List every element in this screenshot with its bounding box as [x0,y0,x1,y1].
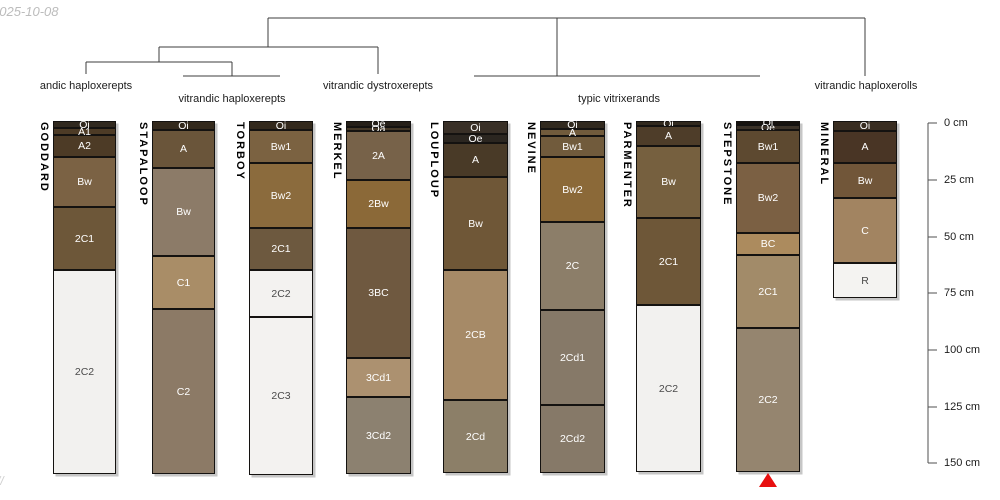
soil-profile-column: OiABw1Bw22C2Cd12Cd2 [540,121,605,473]
soil-horizon: Bw1 [540,136,605,157]
horizon-label: 3Cd2 [347,431,410,441]
soil-horizon: 2Cd [443,400,508,473]
horizon-label: A2 [54,141,115,151]
horizon-label: 2CB [444,330,507,340]
profile-name-label: TORBOY [234,122,246,181]
horizon-label: Bw [444,219,507,229]
soil-profile-column: OeOa2A2Bw3BC3Cd13Cd2 [346,121,411,474]
depth-axis-tick-label: 25 cm [944,174,974,186]
horizon-label: C2 [153,387,214,397]
horizon-label: 2Cd1 [541,353,604,363]
soil-horizon: Bw [833,163,897,198]
profile-name-label: NEVINE [525,122,537,175]
soil-horizon: Bw1 [249,130,313,163]
soil-horizon: 2C [540,222,605,310]
soil-horizon: Oi [249,121,313,130]
horizon-label: 2C2 [737,395,799,405]
soil-profile-column: OiOeBw1Bw2BC2C12C2 [736,121,800,472]
horizon-label: 2C1 [637,257,700,267]
horizon-label: Bw1 [250,142,312,152]
horizon-label: Bw [153,207,214,217]
soil-horizon: 2A [346,131,411,180]
horizon-label: Bw [834,176,896,186]
soil-horizon: Bw1 [736,130,800,163]
soil-horizon: 2Cd2 [540,405,605,473]
soil-horizon: C2 [152,309,215,474]
depth-axis-tick-label: 125 cm [944,401,980,413]
horizon-label: A [834,142,896,152]
soil-profile-column: OiABw2C12C2 [636,121,701,472]
horizon-label: Oi [834,121,896,131]
soil-profile-column: OiBw1Bw22C12C22C3 [249,121,313,475]
cluster-label: typic vitrixerands [578,93,660,105]
soil-horizon: 2C2 [249,270,313,317]
horizon-label: 2Bw [347,199,410,209]
depth-axis-tick-label: 100 cm [944,344,980,356]
horizon-label: 2C1 [54,234,115,244]
soil-horizon: A [540,129,605,136]
soil-horizon: Bw2 [736,163,800,233]
horizon-label: BC [737,239,799,249]
horizon-label: Oi [444,123,507,133]
horizon-label: 2C2 [637,384,700,394]
horizon-label: Oi [250,121,312,131]
horizon-label: Oe [444,134,507,144]
horizon-label: 2C2 [54,367,115,377]
soil-horizon: 2C1 [53,207,116,270]
horizon-label: Bw1 [737,142,799,152]
soil-horizon: 2CB [443,270,508,400]
horizon-label: R [834,276,896,286]
soil-horizon: 2C3 [249,317,313,475]
soil-horizon: 2Cd1 [540,310,605,405]
profile-name-label: GODDARD [38,122,50,193]
profile-name-label: PARMENTER [621,122,633,209]
depth-axis-tick-label: 50 cm [944,231,974,243]
horizon-label: Bw1 [541,142,604,152]
horizon-label: 2Cd2 [541,434,604,444]
soil-horizon: 2C1 [736,255,800,328]
soil-sample-marker-triangle [759,473,777,487]
soil-horizon: Bw [636,146,701,218]
soil-horizon: C [833,198,897,263]
horizon-label: Bw2 [541,185,604,195]
soil-profile-column: OiOeABw2CB2Cd [443,121,508,473]
soil-profile-column: OiA1A2Bw2C12C2 [53,121,116,474]
cluster-label: vitrandic dystroxerepts [323,80,433,92]
soil-horizon: Oi [443,121,508,134]
depth-axis-tick-label: 75 cm [944,287,974,299]
soil-horizon: 2C2 [53,270,116,474]
soil-horizon: 2Bw [346,180,411,228]
horizon-label: 2C3 [250,391,312,401]
soil-horizon: Oi [53,121,116,128]
horizon-label: 2A [347,151,410,161]
profile-name-label: MINERAL [818,122,830,186]
soil-horizon: Bw [53,157,116,207]
horizon-label: 2C1 [737,287,799,297]
horizon-label: A [637,131,700,141]
horizon-label: 3Cd1 [347,373,410,383]
soil-horizon: Oi [152,121,215,130]
horizon-label: 2C [541,261,604,271]
soil-horizon: Oe [443,134,508,143]
profile-name-label: STAPALOOP [137,122,149,207]
horizon-label: Oi [153,121,214,131]
soil-horizon: 2C1 [249,228,313,270]
soil-profile-column: OiABwC1C2 [152,121,215,474]
soil-horizon: A1 [53,128,116,135]
horizon-label: Bw [637,177,700,187]
cluster-label: vitrandic haploxerepts [178,93,285,105]
soil-horizon: 3BC [346,228,411,358]
soil-horizon: Bw [443,177,508,270]
soil-horizon: A [833,131,897,163]
soil-horizon: BC [736,233,800,255]
horizon-label: C [834,226,896,236]
depth-axis-tick-label: 150 cm [944,457,980,469]
horizon-label: 2Cd [444,432,507,442]
horizon-label: 2C1 [250,244,312,254]
soil-horizon: R [833,263,897,298]
soil-horizon: Oi [540,121,605,129]
soil-horizon: 2C1 [636,218,701,305]
depth-axis-tick-label: 0 cm [944,117,968,129]
soil-horizon: C1 [152,256,215,309]
cluster-label: vitrandic haploxerolls [815,80,918,92]
horizon-label: C1 [153,278,214,288]
soil-horizon: Bw2 [540,157,605,222]
horizon-label: 2C2 [250,289,312,299]
soil-horizon: Bw [152,168,215,256]
profile-name-label: MERKEL [331,122,343,180]
soil-profile-dendrogram-figure: 2025-10-08 // andic haploxereptsvitrandi… [0,0,1000,500]
cluster-label: andic haploxerepts [40,80,132,92]
horizon-label: A [153,144,214,154]
horizon-label: Bw2 [737,193,799,203]
soil-horizon: A [152,130,215,168]
soil-horizon: 3Cd1 [346,358,411,397]
horizon-label: A [444,155,507,165]
soil-horizon: A [636,126,701,146]
soil-horizon: 2C2 [636,305,701,472]
horizon-label: 3BC [347,288,410,298]
soil-horizon: A [443,143,508,177]
soil-horizon: Oi [833,121,897,131]
profile-name-label: LOUPLOUP [428,122,440,199]
profile-name-label: STEPSTONE [721,122,733,206]
horizon-label: Bw [54,177,115,187]
soil-horizon: 3Cd2 [346,397,411,474]
horizon-label: Bw2 [250,191,312,201]
soil-horizon: 2C2 [736,328,800,472]
soil-horizon: Bw2 [249,163,313,228]
soil-profile-column: OiABwCR [833,121,897,298]
soil-horizon: A2 [53,135,116,157]
